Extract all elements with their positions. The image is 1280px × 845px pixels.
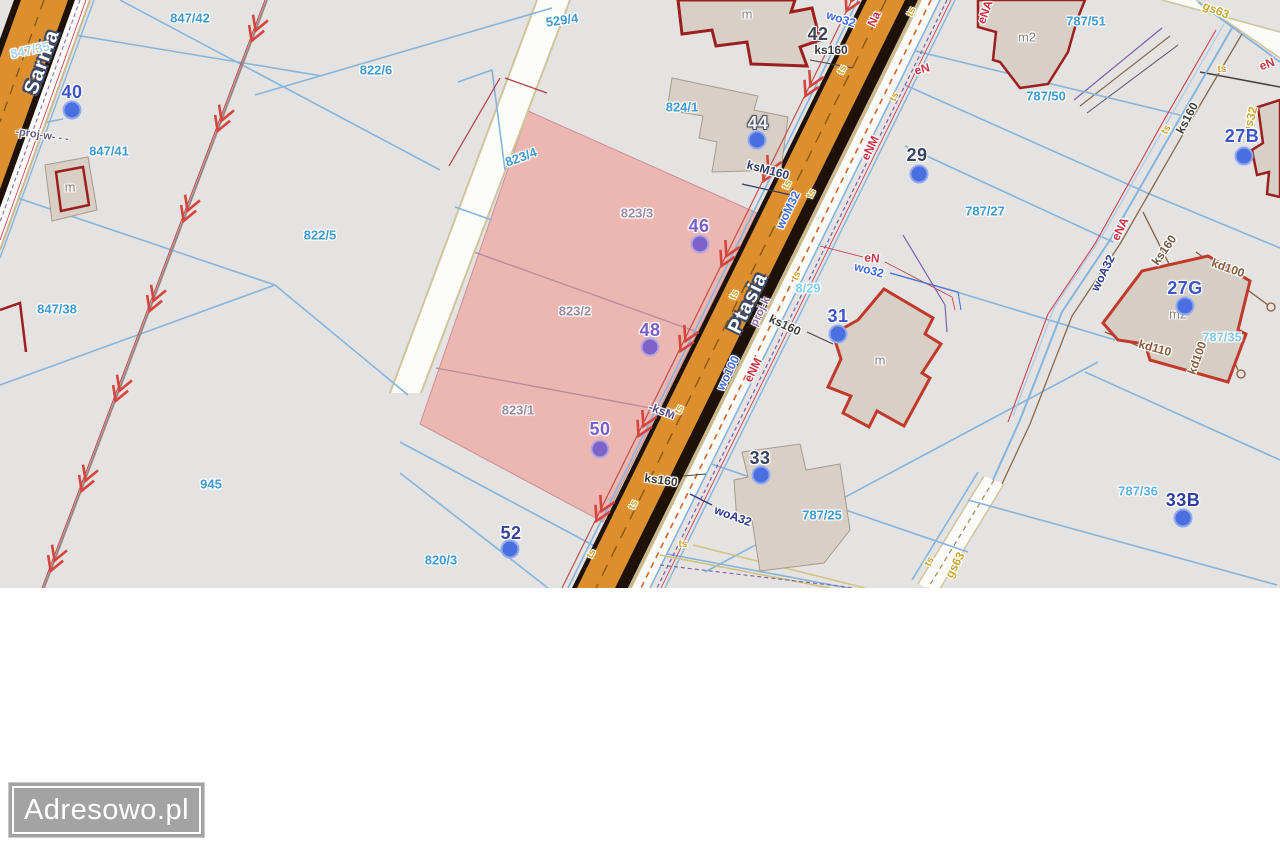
address-marker[interactable]: 44 (747, 114, 768, 132)
address-dot[interactable] (1235, 147, 1254, 166)
address-dot[interactable] (591, 440, 610, 459)
parcel-label: 823/2 (559, 305, 592, 318)
address-marker[interactable]: 42 (807, 25, 828, 43)
utility-label: eNM (859, 134, 881, 162)
address-marker[interactable]: 33B (1166, 491, 1201, 509)
address-dot[interactable] (501, 540, 520, 559)
address-dot[interactable] (63, 101, 82, 120)
utility-label: woA32 (713, 504, 753, 529)
address-dot[interactable] (1174, 509, 1193, 528)
address-marker[interactable]: 27B (1225, 127, 1260, 145)
parcel-label: 847/42 (170, 12, 210, 25)
ts-utility-icon: ts (679, 540, 688, 550)
parcel-label: 787/36 (1118, 485, 1158, 498)
building-label: m (742, 8, 753, 21)
utility-label: eN (1258, 56, 1277, 73)
parcel-label: 787/35 (1202, 331, 1242, 344)
parcel-label: 823/1 (502, 404, 535, 417)
address-dot[interactable] (910, 165, 929, 184)
ts-utility-icon: ts (837, 64, 850, 76)
watermark-text: Adresowo.pl (24, 794, 189, 827)
utility-label: woA32 (1089, 253, 1117, 293)
watermark-frame: Adresowo.pl (12, 786, 201, 834)
ts-utility-icon: ts (806, 188, 819, 200)
address-dot[interactable] (641, 338, 660, 357)
cadastral-map[interactable]: SarniaPtasia847/42847/41847/38847/359458… (0, 0, 1280, 588)
parcel-label: 787/25 (802, 509, 842, 522)
map-labels-overlay: SarniaPtasia847/42847/41847/38847/359458… (0, 0, 1280, 588)
utility-label: Na (865, 9, 883, 28)
ts-utility-icon: ts (586, 548, 599, 560)
utility-label: ks160 (767, 313, 802, 338)
utility-label: ks160 (1150, 233, 1179, 267)
parcel-label: 824/1 (666, 101, 699, 114)
parcel-label: 822/5 (304, 229, 337, 242)
parcel-label: 823/3 (621, 207, 654, 220)
watermark-logo: Adresowo.pl (8, 782, 205, 838)
address-dot[interactable] (829, 325, 848, 344)
utility-label: wo100 (715, 354, 742, 392)
address-marker[interactable]: 33 (749, 449, 770, 467)
building-label: m (875, 354, 886, 367)
utility-label: kd100 (1186, 340, 1209, 376)
address-marker[interactable]: 29 (906, 146, 927, 164)
ts-utility-icon: ts (906, 6, 919, 18)
parcel-label: 787/27 (965, 205, 1005, 218)
parcel-label: 847/41 (89, 145, 129, 158)
utility-label: eNM (742, 356, 764, 384)
building-label: m (65, 181, 76, 194)
address-marker[interactable]: 50 (589, 420, 610, 438)
parcel-label: 529/4 (545, 11, 579, 28)
ts-utility-icon: ts (628, 499, 641, 511)
utility-label: gs63 (943, 550, 966, 580)
parcel-label: 820/3 (425, 554, 458, 567)
address-dot[interactable] (1176, 297, 1195, 316)
utility-label: ks160 (814, 44, 847, 56)
address-marker[interactable]: 31 (827, 307, 848, 325)
address-dot[interactable] (748, 131, 767, 150)
utility-label: kd100 (1210, 257, 1246, 280)
utility-label: eNA (975, 0, 994, 25)
parcel-label: 823/4 (503, 145, 538, 168)
ts-utility-icon: ts (674, 404, 687, 416)
utility-label: -proj-w- - - (15, 127, 70, 145)
utility-label: wo32 (825, 9, 857, 30)
address-marker[interactable]: 40 (61, 83, 82, 101)
utility-label: ks160 (1174, 100, 1200, 135)
building-label: m2 (1018, 31, 1036, 44)
ts-utility-icon: ts (1160, 124, 1173, 137)
utility-label: gs63 (1201, 0, 1231, 21)
parcel-label: 787/50 (1026, 90, 1066, 103)
parcel-label: 945 (200, 478, 222, 491)
address-dot[interactable] (752, 466, 771, 485)
utility-label: kd110 (1137, 338, 1172, 358)
parcel-label: 847/38 (37, 303, 77, 316)
address-marker[interactable]: 48 (639, 321, 660, 339)
parcel-label: 8/29 (795, 282, 820, 295)
parcel-label: 822/6 (360, 64, 393, 77)
utility-label: eN (913, 61, 931, 77)
utility-label: woM32 (774, 189, 802, 230)
address-dot[interactable] (691, 235, 710, 254)
parcel-label: 787/51 (1066, 15, 1106, 28)
utility-label: ks160 (644, 472, 679, 489)
street-label: Sarnia (21, 27, 63, 97)
address-marker[interactable]: 46 (688, 217, 709, 235)
ts-utility-icon: ts (889, 91, 902, 103)
ts-utility-icon: ts (923, 556, 936, 569)
utility-label: eNA (1109, 216, 1130, 243)
utility-label: eN (864, 251, 880, 264)
ts-utility-icon: ts (1218, 65, 1227, 75)
address-marker[interactable]: 27G (1167, 279, 1203, 297)
